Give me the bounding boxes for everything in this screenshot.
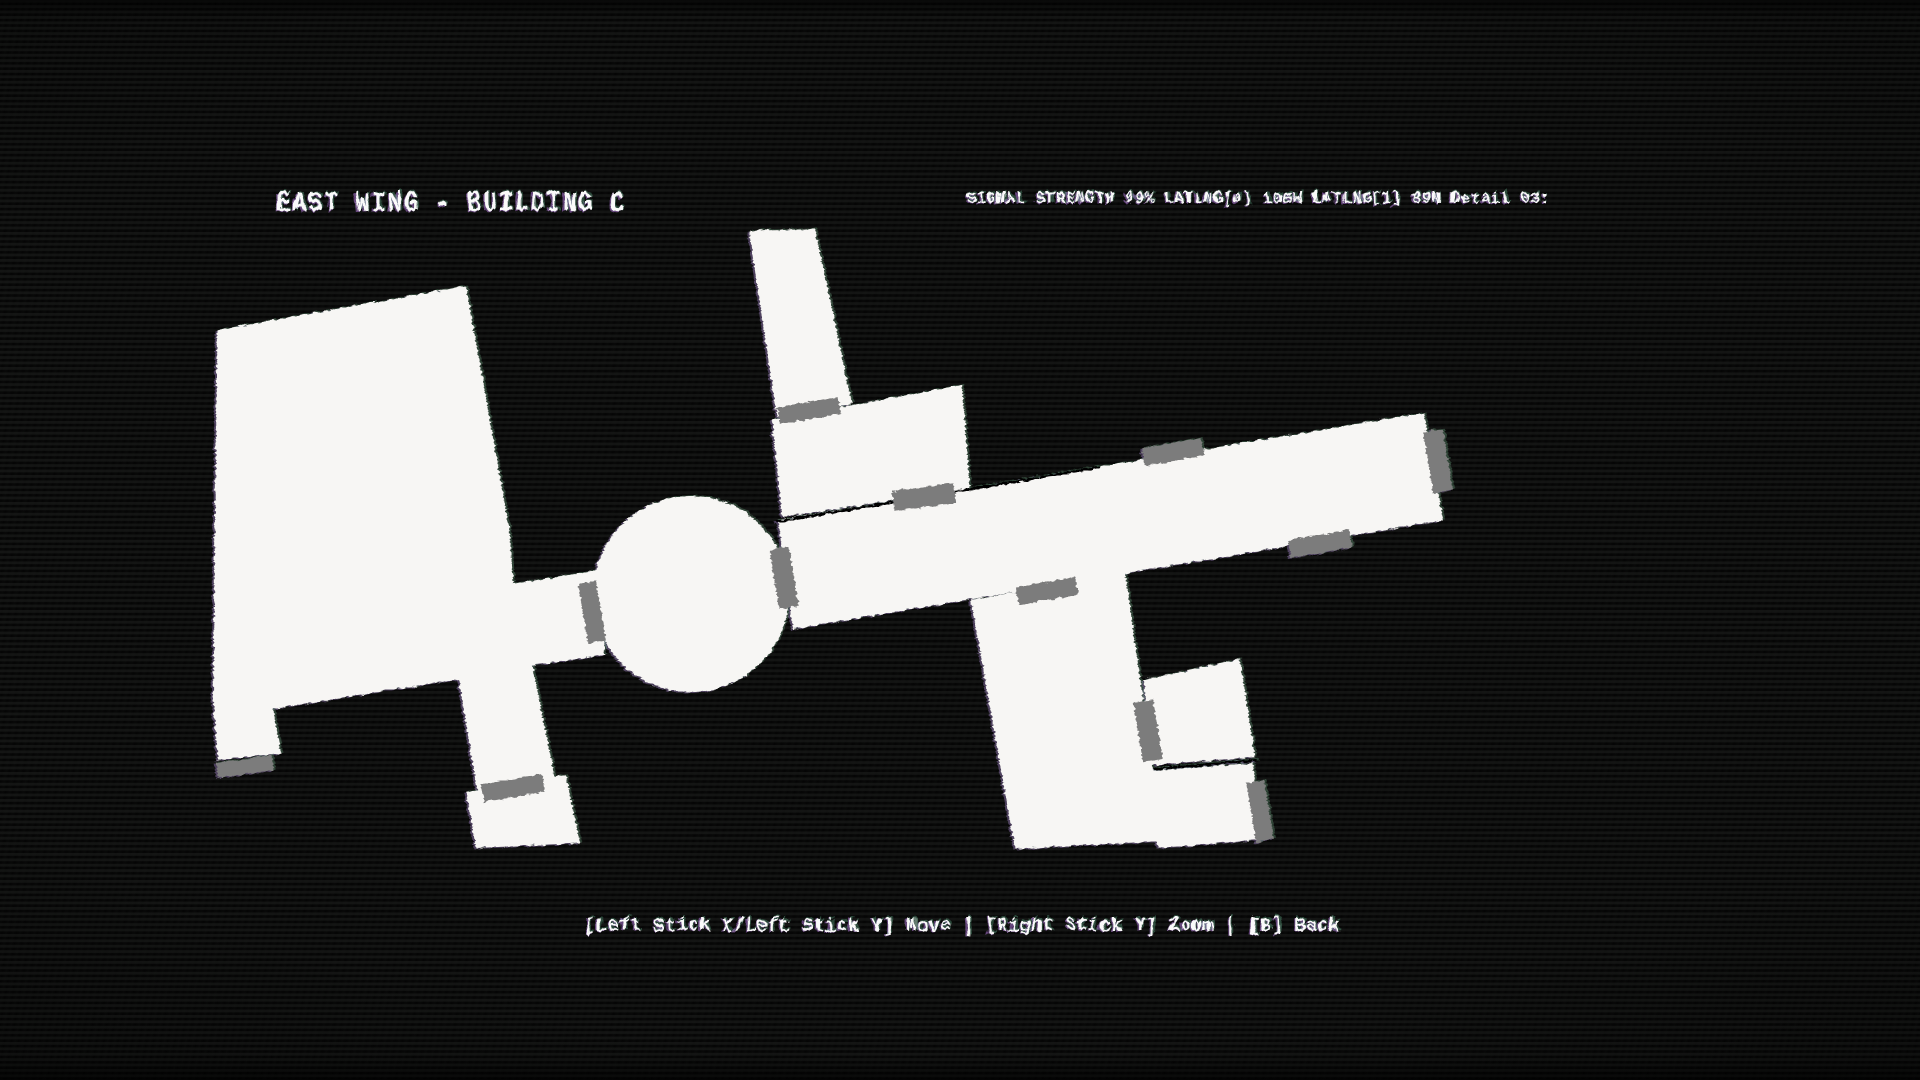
svg-text:SIGNAL STRENGTH 99% LATLNG[0]: SIGNAL STRENGTH 99% LATLNG[0] 106W LATLN… <box>965 188 1548 206</box>
svg-text:[Left Stick X/Left Stick Y] Mo: [Left Stick X/Left Stick Y] Move | [Righ… <box>583 914 1339 936</box>
svg-text:EAST WING - BUILDING C: EAST WING - BUILDING C <box>275 185 625 217</box>
